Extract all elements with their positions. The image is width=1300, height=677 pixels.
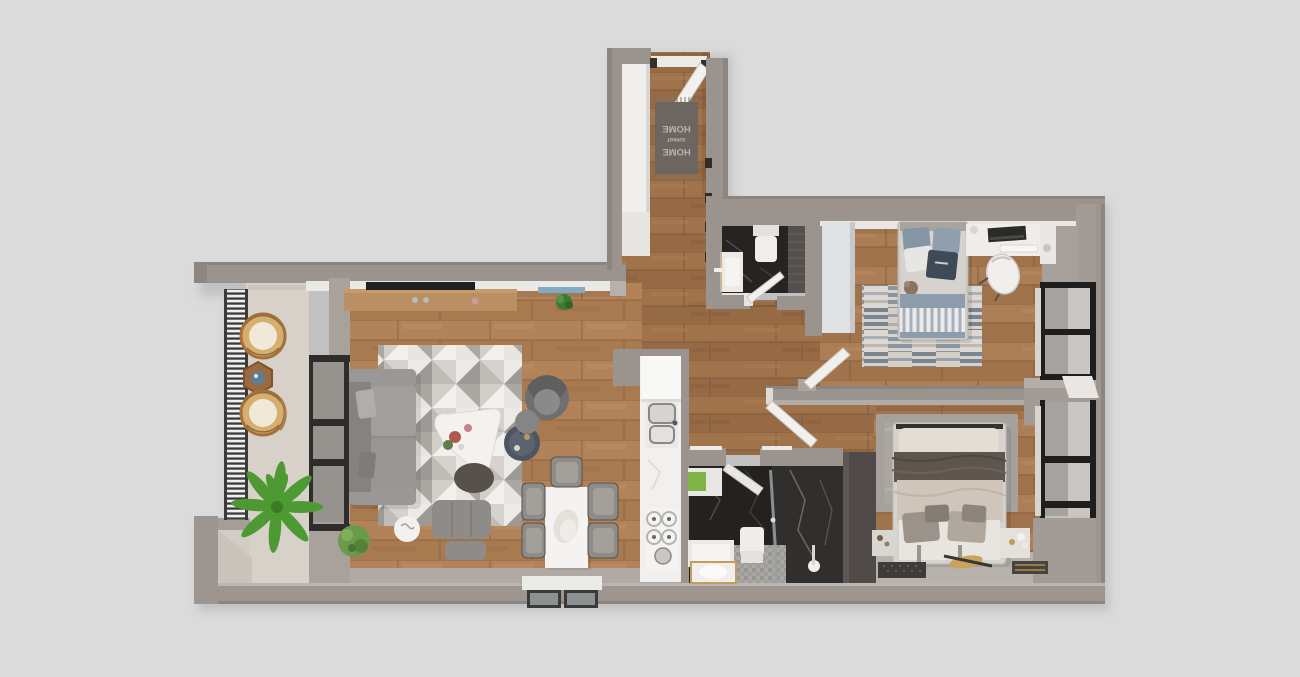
svg-text:sweet: sweet [667, 136, 686, 143]
svg-text:HOME: HOME [662, 146, 691, 157]
svg-text:HOME: HOME [662, 123, 691, 134]
